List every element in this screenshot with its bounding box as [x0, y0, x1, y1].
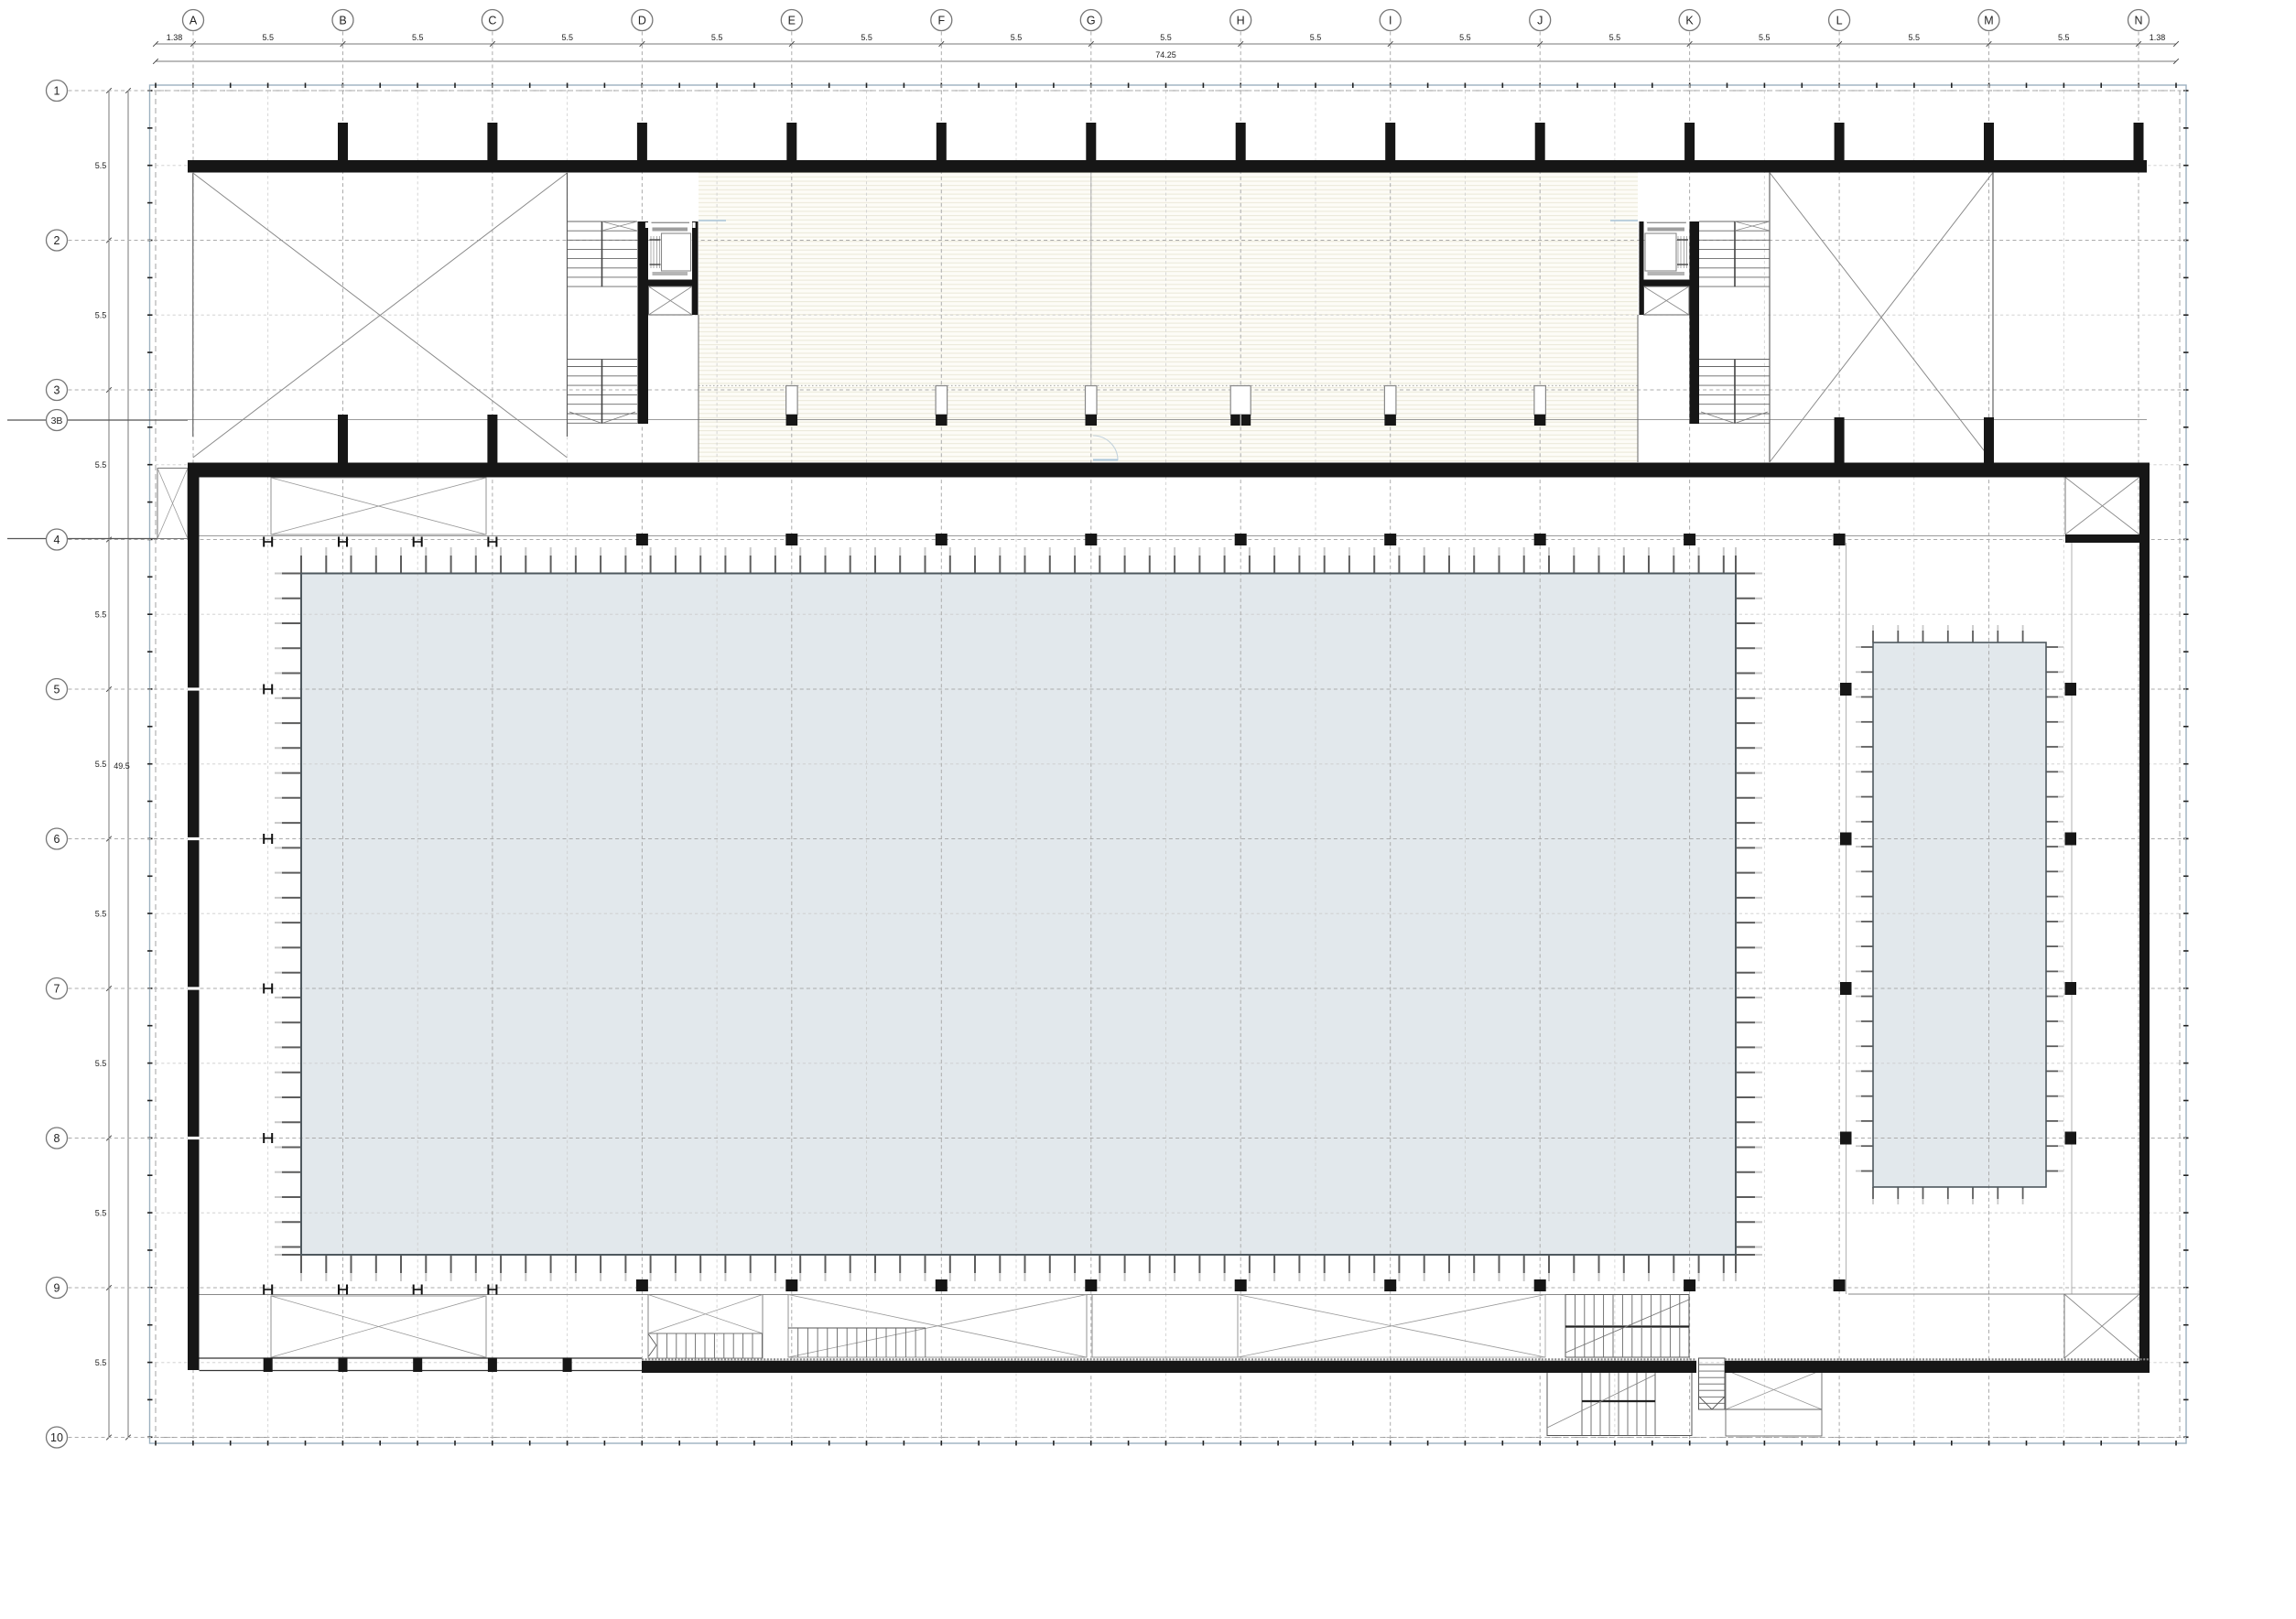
- svg-text:5.5: 5.5: [1909, 33, 1921, 42]
- svg-text:3: 3: [54, 384, 60, 397]
- svg-text:C: C: [488, 15, 496, 27]
- svg-text:5.5: 5.5: [95, 161, 107, 170]
- svg-text:5.5: 5.5: [1459, 33, 1471, 42]
- svg-text:5.5: 5.5: [95, 1059, 107, 1068]
- svg-text:1.38: 1.38: [2150, 33, 2166, 42]
- svg-text:5.5: 5.5: [95, 760, 107, 769]
- svg-text:8: 8: [54, 1132, 60, 1145]
- svg-text:5.5: 5.5: [95, 1209, 107, 1218]
- svg-text:3B: 3B: [51, 416, 63, 426]
- svg-text:2: 2: [54, 234, 60, 247]
- svg-text:E: E: [788, 15, 796, 27]
- svg-text:I: I: [1389, 15, 1392, 27]
- svg-text:10: 10: [50, 1431, 63, 1444]
- svg-text:5.5: 5.5: [412, 33, 424, 42]
- svg-text:5.5: 5.5: [561, 33, 573, 42]
- svg-text:L: L: [1836, 15, 1843, 27]
- svg-text:5.5: 5.5: [861, 33, 872, 42]
- svg-text:J: J: [1537, 15, 1543, 27]
- svg-text:4: 4: [54, 534, 60, 546]
- svg-text:D: D: [638, 15, 646, 27]
- svg-text:5.5: 5.5: [262, 33, 274, 42]
- svg-text:9: 9: [54, 1282, 60, 1295]
- svg-text:A: A: [190, 15, 198, 27]
- svg-text:5.5: 5.5: [95, 910, 107, 919]
- svg-text:K: K: [1685, 15, 1694, 27]
- svg-text:G: G: [1087, 15, 1096, 27]
- svg-text:1: 1: [54, 85, 60, 98]
- svg-text:5.5: 5.5: [1609, 33, 1621, 42]
- svg-text:5.5: 5.5: [1011, 33, 1023, 42]
- svg-text:5.5: 5.5: [711, 33, 723, 42]
- svg-text:6: 6: [54, 833, 60, 846]
- svg-text:B: B: [339, 15, 346, 27]
- svg-text:5.5: 5.5: [1759, 33, 1771, 42]
- svg-text:49.5: 49.5: [114, 761, 130, 771]
- svg-text:5: 5: [54, 684, 60, 696]
- svg-text:5.5: 5.5: [95, 310, 107, 319]
- svg-text:F: F: [937, 15, 945, 27]
- svg-text:5.5: 5.5: [2058, 33, 2070, 42]
- svg-text:5.5: 5.5: [1310, 33, 1322, 42]
- svg-text:5.5: 5.5: [95, 610, 107, 620]
- svg-text:74.25: 74.25: [1155, 50, 1176, 59]
- svg-text:M: M: [1984, 15, 1993, 27]
- svg-text:5.5: 5.5: [95, 1358, 107, 1367]
- svg-text:H: H: [1237, 15, 1245, 27]
- svg-text:5.5: 5.5: [95, 460, 107, 470]
- svg-text:1.38: 1.38: [167, 33, 183, 42]
- svg-text:7: 7: [54, 983, 60, 996]
- svg-text:N: N: [2134, 15, 2142, 27]
- svg-text:5.5: 5.5: [1160, 33, 1172, 42]
